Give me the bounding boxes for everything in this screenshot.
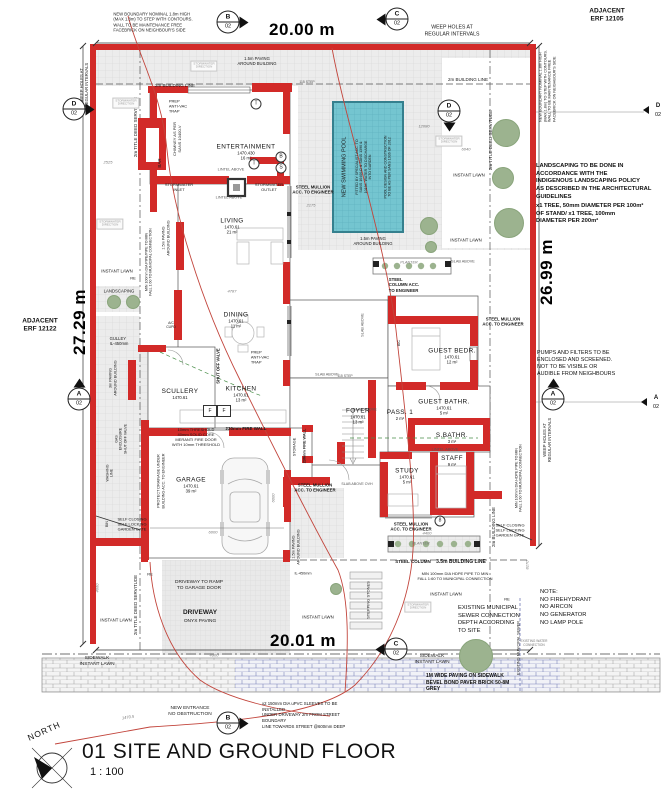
note-site-restrictions: NOTE: NO FIREHYDRANT NO AIRCON NO GENERA… (540, 589, 625, 627)
note-upvc-sleeves: x2 150mm DIA uPVC SLEEVES TO BE INSTALLE… (262, 701, 360, 729)
adjacent-erf-left: ADJACENT ERF 12122 (22, 318, 57, 335)
note-pumps: PUMPS AND FILTERS TO BE ENCLOSED AND SCR… (537, 350, 642, 379)
north-compass-icon (32, 748, 72, 788)
drawing-scale: 1 : 100 (90, 766, 124, 778)
dimension-right: 26.99 m (537, 239, 557, 305)
dimension-bottom: 20.01 m (270, 631, 336, 651)
plan-linework (0, 0, 668, 800)
note-sidewalk-paving: 1M WIDE PAVING ON SIDEWALK BEVEL BOND PA… (426, 673, 524, 693)
note-sewer-connection: EXISTING MUNICIPAL SEWER CONNECTION DEPT… (458, 605, 528, 636)
drawing-title: 01 SITE AND GROUND FLOOR (82, 740, 396, 764)
note-trees: x1 TREE, 50mm DIAMETER PER 100m² OF STAN… (536, 203, 658, 226)
note-landscaping: LANDSCAPING TO BE DONE IN ACCORDANCE WIT… (536, 163, 658, 201)
dimension-top: 20.00 m (269, 20, 335, 40)
adjacent-erf-top-right: ADJACENT ERF 12105 (589, 8, 624, 25)
dimension-left: 27.29 m (70, 289, 90, 355)
site-plan-canvas: 2m BUILDING LINE2m BUILDING LINE2m BUILD… (0, 0, 668, 800)
